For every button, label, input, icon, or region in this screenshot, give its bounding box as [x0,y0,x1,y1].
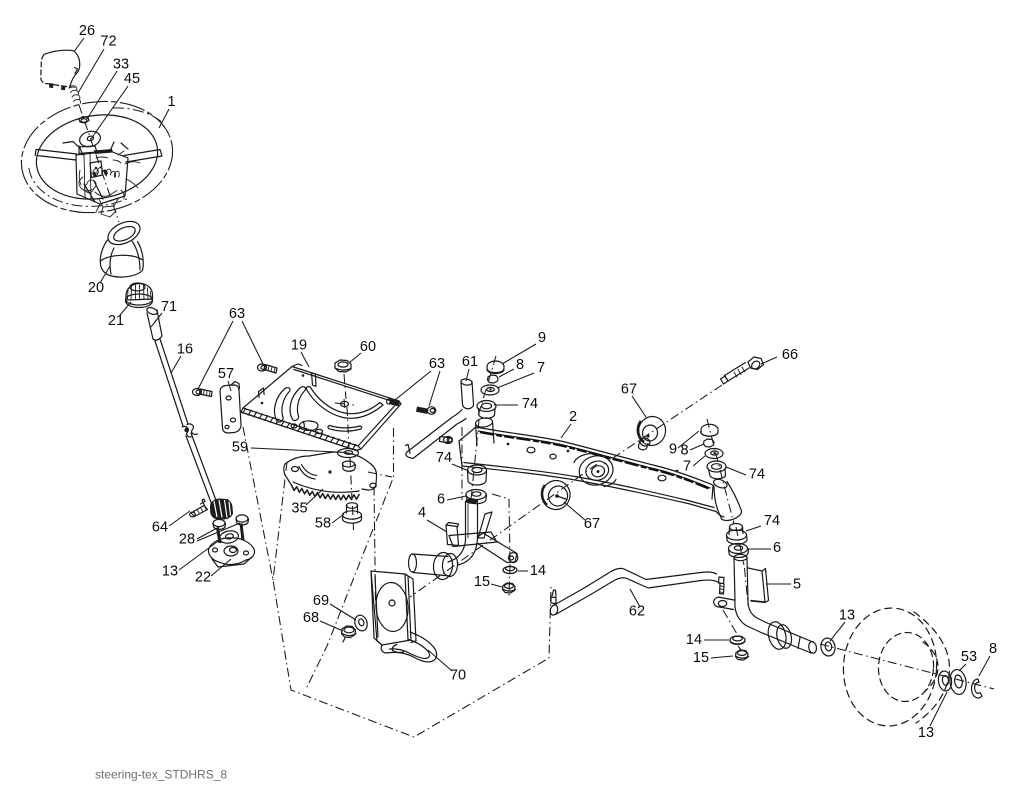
svg-text:16: 16 [177,342,193,358]
svg-text:8: 8 [516,357,524,373]
svg-text:35: 35 [291,501,307,517]
svg-text:63: 63 [229,306,245,322]
svg-text:13: 13 [839,608,855,624]
svg-text:5: 5 [793,577,801,593]
svg-text:21: 21 [108,313,124,329]
svg-text:15: 15 [693,650,709,666]
svg-text:69: 69 [313,593,329,609]
svg-text:57: 57 [218,366,234,382]
svg-text:67: 67 [584,516,600,532]
svg-text:1: 1 [167,94,175,110]
svg-text:6: 6 [437,492,445,508]
svg-text:74: 74 [749,467,765,483]
svg-text:26: 26 [79,23,95,39]
svg-text:59: 59 [232,440,248,456]
svg-text:9: 9 [538,330,546,346]
svg-text:22: 22 [195,570,211,586]
svg-text:68: 68 [303,610,319,626]
svg-text:67: 67 [621,382,637,398]
svg-text:15: 15 [474,574,490,590]
svg-text:53: 53 [961,649,977,665]
svg-text:7: 7 [537,360,545,376]
svg-text:2: 2 [569,409,577,425]
svg-text:72: 72 [100,34,116,50]
svg-text:13: 13 [162,564,178,580]
svg-text:9: 9 [669,442,677,458]
svg-text:74: 74 [764,513,780,529]
svg-text:28: 28 [179,532,195,548]
svg-text:45: 45 [124,71,140,87]
svg-text:60: 60 [360,339,376,355]
svg-text:steering-tex_STDHRS_8: steering-tex_STDHRS_8 [95,768,227,782]
svg-text:71: 71 [161,299,177,315]
svg-text:8: 8 [989,641,997,657]
svg-text:64: 64 [152,520,168,536]
svg-text:14: 14 [530,563,546,579]
svg-text:6: 6 [773,540,781,556]
svg-text:63: 63 [429,356,445,372]
svg-text:20: 20 [88,280,104,296]
svg-text:66: 66 [782,347,798,363]
svg-text:8: 8 [680,443,688,459]
svg-text:7: 7 [683,459,691,475]
svg-text:58: 58 [315,516,331,532]
svg-text:74: 74 [436,450,452,466]
svg-text:74: 74 [522,396,538,412]
svg-text:70: 70 [450,668,466,684]
svg-text:19: 19 [291,338,307,354]
svg-text:62: 62 [629,604,645,620]
svg-text:61: 61 [462,354,478,370]
svg-text:14: 14 [686,632,702,648]
svg-text:4: 4 [418,505,426,521]
svg-text:13: 13 [918,725,934,741]
